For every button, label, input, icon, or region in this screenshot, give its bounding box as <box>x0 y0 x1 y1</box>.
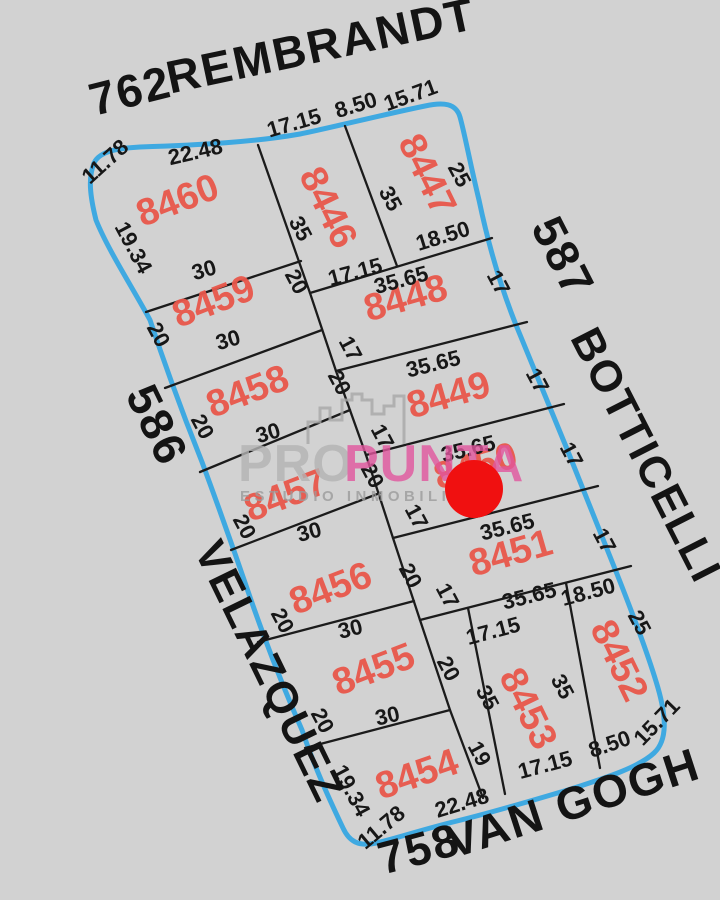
lot-map: 8446 8447 8448 8449 8450 8451 8452 8453 … <box>0 0 720 900</box>
watermark-brand-prefix: PRO <box>238 435 354 493</box>
location-marker <box>445 460 503 518</box>
